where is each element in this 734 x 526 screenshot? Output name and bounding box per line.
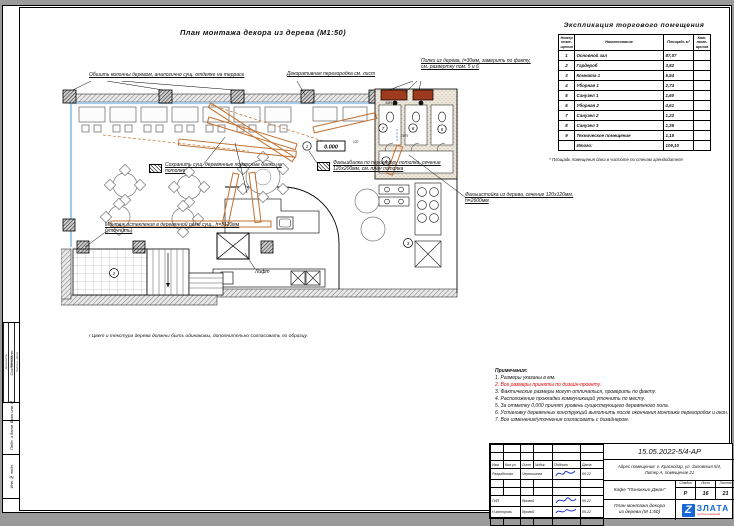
stage-values: Р 16 21 [676, 488, 734, 500]
explication-section: Экспликация торгового помещения Номер по… [555, 22, 713, 162]
signature [553, 469, 581, 480]
dim-120: 120 [353, 140, 359, 144]
header-num: Номер поме- щения [559, 35, 575, 51]
note-item: 3. Фактические размеры могут отличаться,… [495, 389, 734, 396]
annotation-glazing: Монтаж остекления в деревянной раме сущ.… [105, 222, 253, 235]
lift-label: Лифт [254, 269, 270, 275]
kitchen-equipment [379, 183, 441, 267]
drawing-sheet: Согласовано: Должность Фамилия Подпись, … [2, 5, 732, 513]
datum-value: 0.000 [324, 145, 338, 151]
signature [553, 496, 581, 507]
note-item: 1. Размеры указаны в мм. [495, 375, 734, 382]
note-item: 6. Установку деревянных конструкций выпо… [495, 410, 734, 417]
annotation-falsepost: Фальшстойка из дерева, сечение 120х120мм… [465, 192, 595, 205]
sheets-total: 21 [716, 488, 734, 500]
room-mark-2: 2 [112, 271, 116, 276]
dim-2875: 2875 [400, 134, 408, 138]
signature-table: Изм.Кол.уч Лист№док. ПодписьДата Разрабо… [490, 444, 604, 526]
header-area: Площадь м² [664, 35, 694, 51]
annotation-falsebeam: Фальшбалка по периметру потолка, сечение… [333, 160, 451, 173]
total-label: Итого: [575, 141, 664, 151]
side-stamp-column: Согласовано: Должность Фамилия Подпись, … [3, 6, 19, 512]
explication-footnote: * Площадь помещения дана в чистоте по ст… [549, 157, 713, 162]
page-title: План монтажа декора из дерева (М1:50) [123, 28, 403, 37]
stamp-col-role: Должность [4, 354, 8, 369]
dim-3085: 3085 [385, 101, 392, 105]
company-logo: Z ЗЛАТА группа компаний [676, 500, 734, 520]
table-row: 4Уборная 12,74 [559, 81, 711, 91]
stamp-col-name: Фамилия [9, 356, 13, 368]
notes-section: Примечания: 1. Размеры указаны в мм. 2. … [495, 368, 734, 424]
stamp-col-sign: Подпись, Дата [15, 352, 19, 372]
table-row: 5Санузел 11,60 [559, 91, 711, 101]
sig-row-developer: Разработал Чернышева 05.22 [491, 469, 604, 480]
floor-plan: 0.000 1 2 3 4 5 6 7 2875 3085 120 Лифт [61, 81, 473, 319]
color-note: ! Цвет и текстура дерева должны быть оди… [89, 334, 429, 339]
explication-table: Номер поме- щения Наименование Площадь м… [558, 34, 711, 151]
total-value: 109,10 [664, 141, 694, 151]
stamp-agreed-cols: Должность Фамилия Подпись, Дата [3, 322, 19, 402]
stamp-vzam: Взам.инв.№ [3, 402, 19, 420]
table-row: 9Техническое помещение1,15 [559, 131, 711, 141]
header-cat: Кат. поме- щения [694, 35, 711, 51]
notes-title: Примечания: [495, 368, 734, 375]
logo-text: ЗЛАТА [697, 504, 730, 513]
header-name: Наименование [575, 35, 664, 51]
annotation-shelves: Полки из дерева, t=30мм, замерить по фак… [421, 58, 533, 71]
document-number: 15.05.2022-5/4-АР [604, 444, 734, 460]
stamp-podp: Подп. и дата [3, 420, 19, 454]
note-item: 2. Все размеры приняты по дизайн-проекту… [495, 382, 734, 389]
terrace-stairs [73, 233, 249, 295]
drawing-name: План монтажа декораиз дерева (М 1:50) [604, 500, 676, 520]
title-block: Изм.Кол.уч Лист№док. ПодписьДата Разрабо… [489, 443, 733, 519]
table-row: 1Основной зал87,07 [559, 51, 711, 61]
project-name: Кафе "Пиноккио Джан" [604, 481, 676, 500]
title-block-right: 15.05.2022-5/4-АР Адрес помещения: г. Кр… [603, 444, 734, 518]
sig-header-row: Изм.Кол.уч Лист№док. ПодписьДата [491, 461, 604, 469]
table-row: 6Уборная 24,61 [559, 101, 711, 111]
datum-mark: 0.000 1 [303, 141, 345, 151]
annotation-partition: Декоративная перегородка см. лист [279, 71, 383, 77]
table-row: 2Гардероб3,82 [559, 61, 711, 71]
hatch-swatch-beams [149, 164, 162, 173]
explication-title: Экспликация торгового помещения [555, 22, 713, 29]
table-row: 3Комната 15,54 [559, 71, 711, 81]
table-row: 7Санузел 21,22 [559, 111, 711, 121]
stage-labels: Стадия Лист Листов [676, 481, 734, 488]
annotation-beams: Сохранить сущ. деревянные подвесные балк… [165, 162, 295, 175]
annotation-columns: Обшить колонны деревом, аналогично сущ. … [89, 72, 309, 78]
hatch-swatch-falsebeam [317, 162, 330, 171]
logo-z-icon: Z [682, 504, 695, 517]
address: Адрес помещения: г. Краснодар, ул. Зипов… [604, 460, 734, 481]
note-item: 5. За отметку 0,000 принят уровень сущес… [495, 403, 734, 410]
sig-row-gip: ГИП Яровой 05.22 [491, 496, 604, 507]
note-item: 7. Все изменения/уточнения согласовать с… [495, 417, 734, 424]
stamp-empty [3, 498, 19, 512]
note-item: 4. Расположение прокладки коммуникаций у… [495, 396, 734, 403]
stamp-inv: Инв.№ подл. [3, 454, 19, 498]
table-row: 8Санузел 31,35 [559, 121, 711, 131]
sheet-number: 16 [696, 488, 716, 500]
table-header-row: Номер поме- щения Наименование Площадь м… [559, 35, 711, 51]
stage-value: Р [676, 488, 696, 500]
table-total-row: Итого:109,10 [559, 141, 711, 151]
